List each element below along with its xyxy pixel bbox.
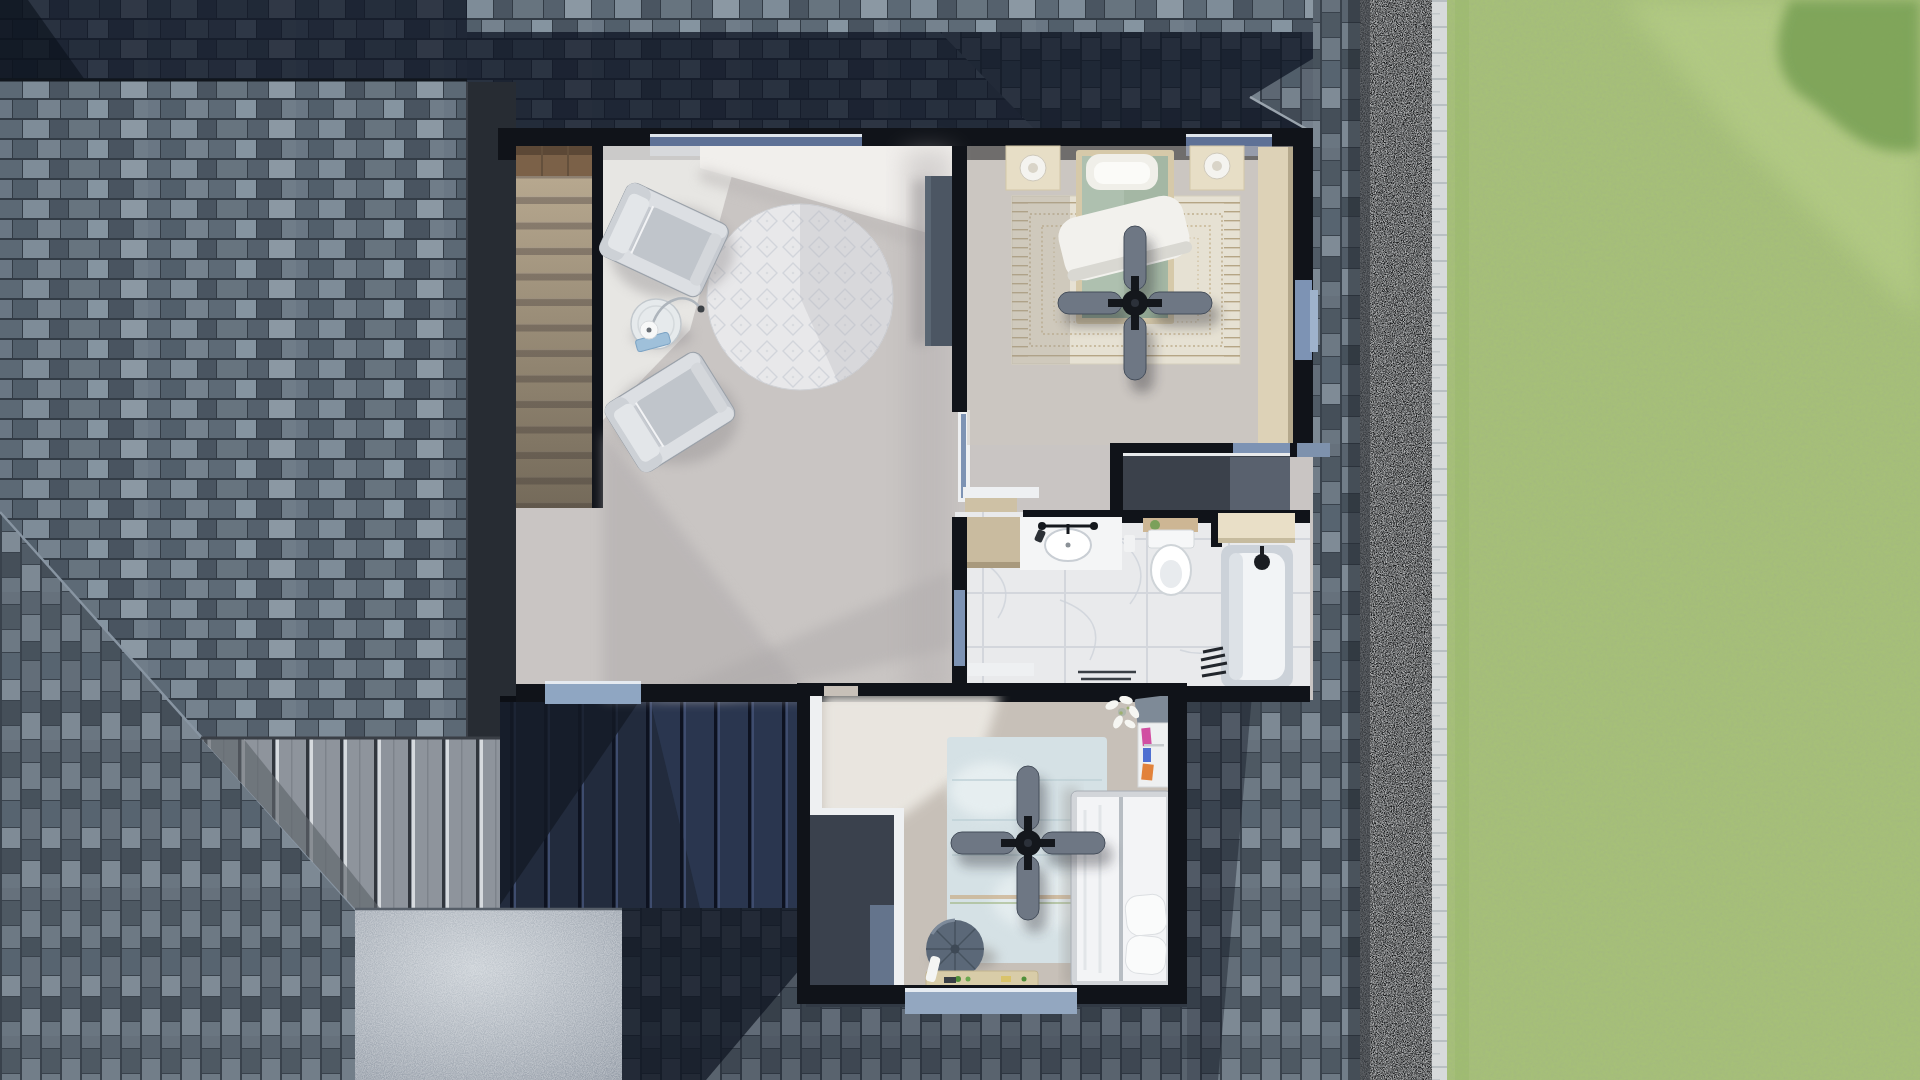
concrete-patio <box>355 908 622 1080</box>
void-wall-side <box>894 815 904 990</box>
wood-cabinet-shadow <box>965 562 1020 568</box>
nightstand-left <box>1006 146 1060 190</box>
stair-wall <box>592 146 603 508</box>
vanity <box>1020 517 1122 570</box>
bathtub <box>1221 545 1293 688</box>
east-eave-shadow <box>1348 0 1360 1080</box>
round-diamond-rug <box>707 204 893 390</box>
pillow-2 <box>1094 162 1150 184</box>
bedroom2-doorway <box>824 686 858 696</box>
bedroom-1 <box>952 146 1318 457</box>
cream-shelf-shadow <box>1218 538 1295 543</box>
render-viewport <box>0 0 1920 1080</box>
shower-head <box>1254 554 1270 570</box>
built-in-wardrobe <box>1258 147 1293 445</box>
window-head-trim-1 <box>650 134 862 137</box>
pillow-b <box>1124 934 1167 975</box>
void-glass <box>870 905 896 987</box>
waste-bin <box>1124 535 1135 552</box>
closet-west-wall <box>1110 443 1123 512</box>
window-head-trim-2 <box>1186 134 1272 137</box>
gravel-light-speckle <box>1360 0 1432 1080</box>
floorplan-render <box>0 0 1920 1080</box>
bookshelf <box>1134 695 1171 787</box>
sink-drain <box>1066 543 1071 548</box>
toilet-plant <box>1150 520 1160 530</box>
gravel-edge-shadow <box>1360 0 1370 1080</box>
stone-curb-joints <box>1432 0 1447 1080</box>
bedroom2-west-wall-inner <box>810 690 822 810</box>
bed-white <box>1064 788 1172 987</box>
nightstand-right <box>1190 146 1244 190</box>
stairwell <box>516 146 603 508</box>
wood-cabinet <box>965 517 1020 568</box>
pillow-a <box>1124 893 1168 937</box>
roof-top-shadow <box>467 32 1360 135</box>
wardrobe-edge-shade <box>1288 147 1293 445</box>
landscape <box>1360 0 1920 1080</box>
closet-dormer-window <box>1297 443 1330 457</box>
fascia-band-west <box>467 82 516 740</box>
bedroom2-east-wall <box>1168 683 1187 1004</box>
standing-seam-roof-navy <box>500 696 806 908</box>
wood-landing-edge <box>516 146 592 155</box>
bed-frame-divider <box>1119 797 1123 981</box>
bedroom2-west-wall <box>797 683 810 1004</box>
south-window-trim <box>545 681 641 684</box>
bathroom <box>952 510 1310 702</box>
cream-shelf <box>1218 513 1295 542</box>
east-window-sill <box>1310 290 1318 352</box>
east-wall-window-bedroom1 <box>1295 280 1312 360</box>
bedroom1-west-wall <box>952 146 967 412</box>
lawn-edge-shade <box>1455 0 1469 1080</box>
bathroom-bench <box>968 663 1034 676</box>
south-window-trim-2 <box>905 988 1077 992</box>
closet-shelf-area <box>1230 457 1290 512</box>
dresser-top <box>1134 695 1171 727</box>
bathroom-glass-panel <box>954 590 965 666</box>
stair-darkening <box>516 176 592 508</box>
sitting-south-window <box>545 684 641 704</box>
bedroom2-south-window <box>905 992 1077 1014</box>
closet-trim <box>1123 453 1290 456</box>
